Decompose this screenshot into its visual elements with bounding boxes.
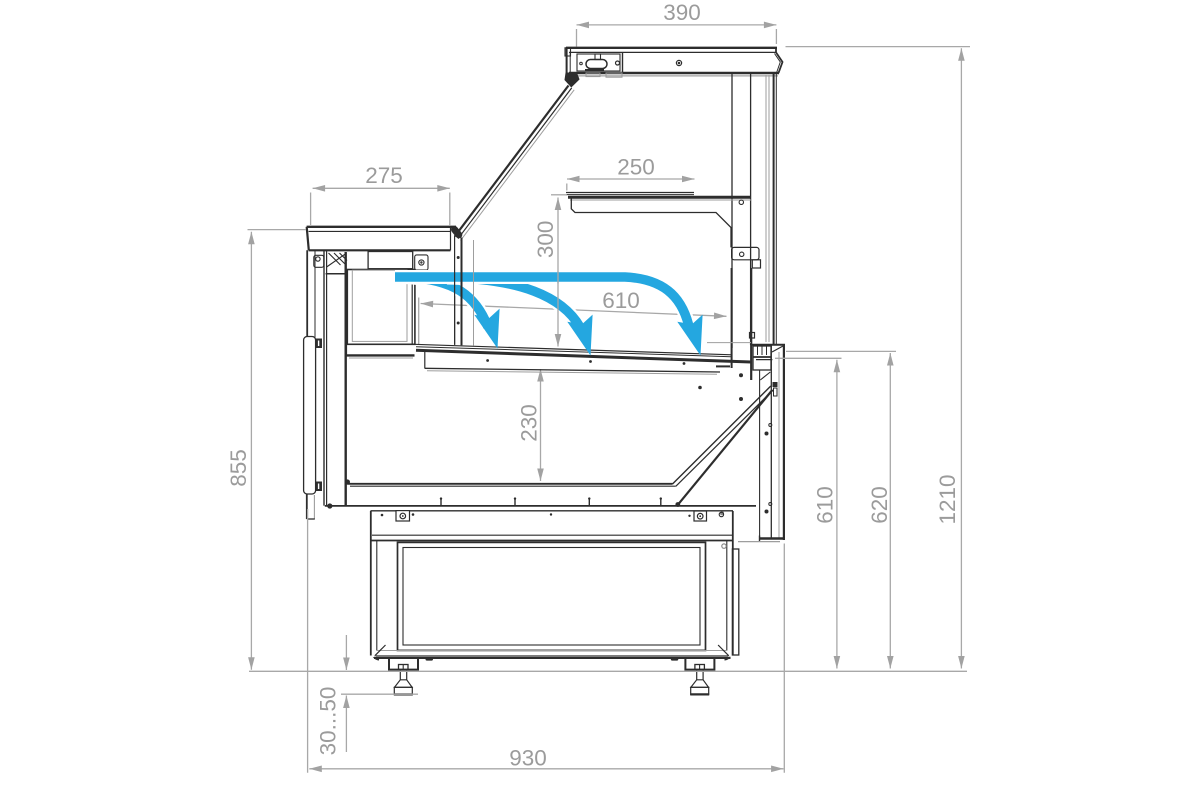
svg-text:610: 610 (602, 288, 640, 313)
svg-text:855: 855 (226, 449, 251, 487)
svg-text:610: 610 (813, 486, 838, 524)
svg-text:250: 250 (617, 155, 655, 180)
svg-text:275: 275 (365, 163, 403, 188)
svg-text:390: 390 (663, 0, 701, 25)
svg-text:300: 300 (533, 221, 558, 259)
svg-text:1210: 1210 (935, 474, 960, 524)
svg-text:930: 930 (509, 746, 547, 771)
svg-text:620: 620 (867, 486, 892, 524)
svg-text:230: 230 (517, 404, 542, 442)
svg-text:30...50: 30...50 (316, 687, 341, 756)
